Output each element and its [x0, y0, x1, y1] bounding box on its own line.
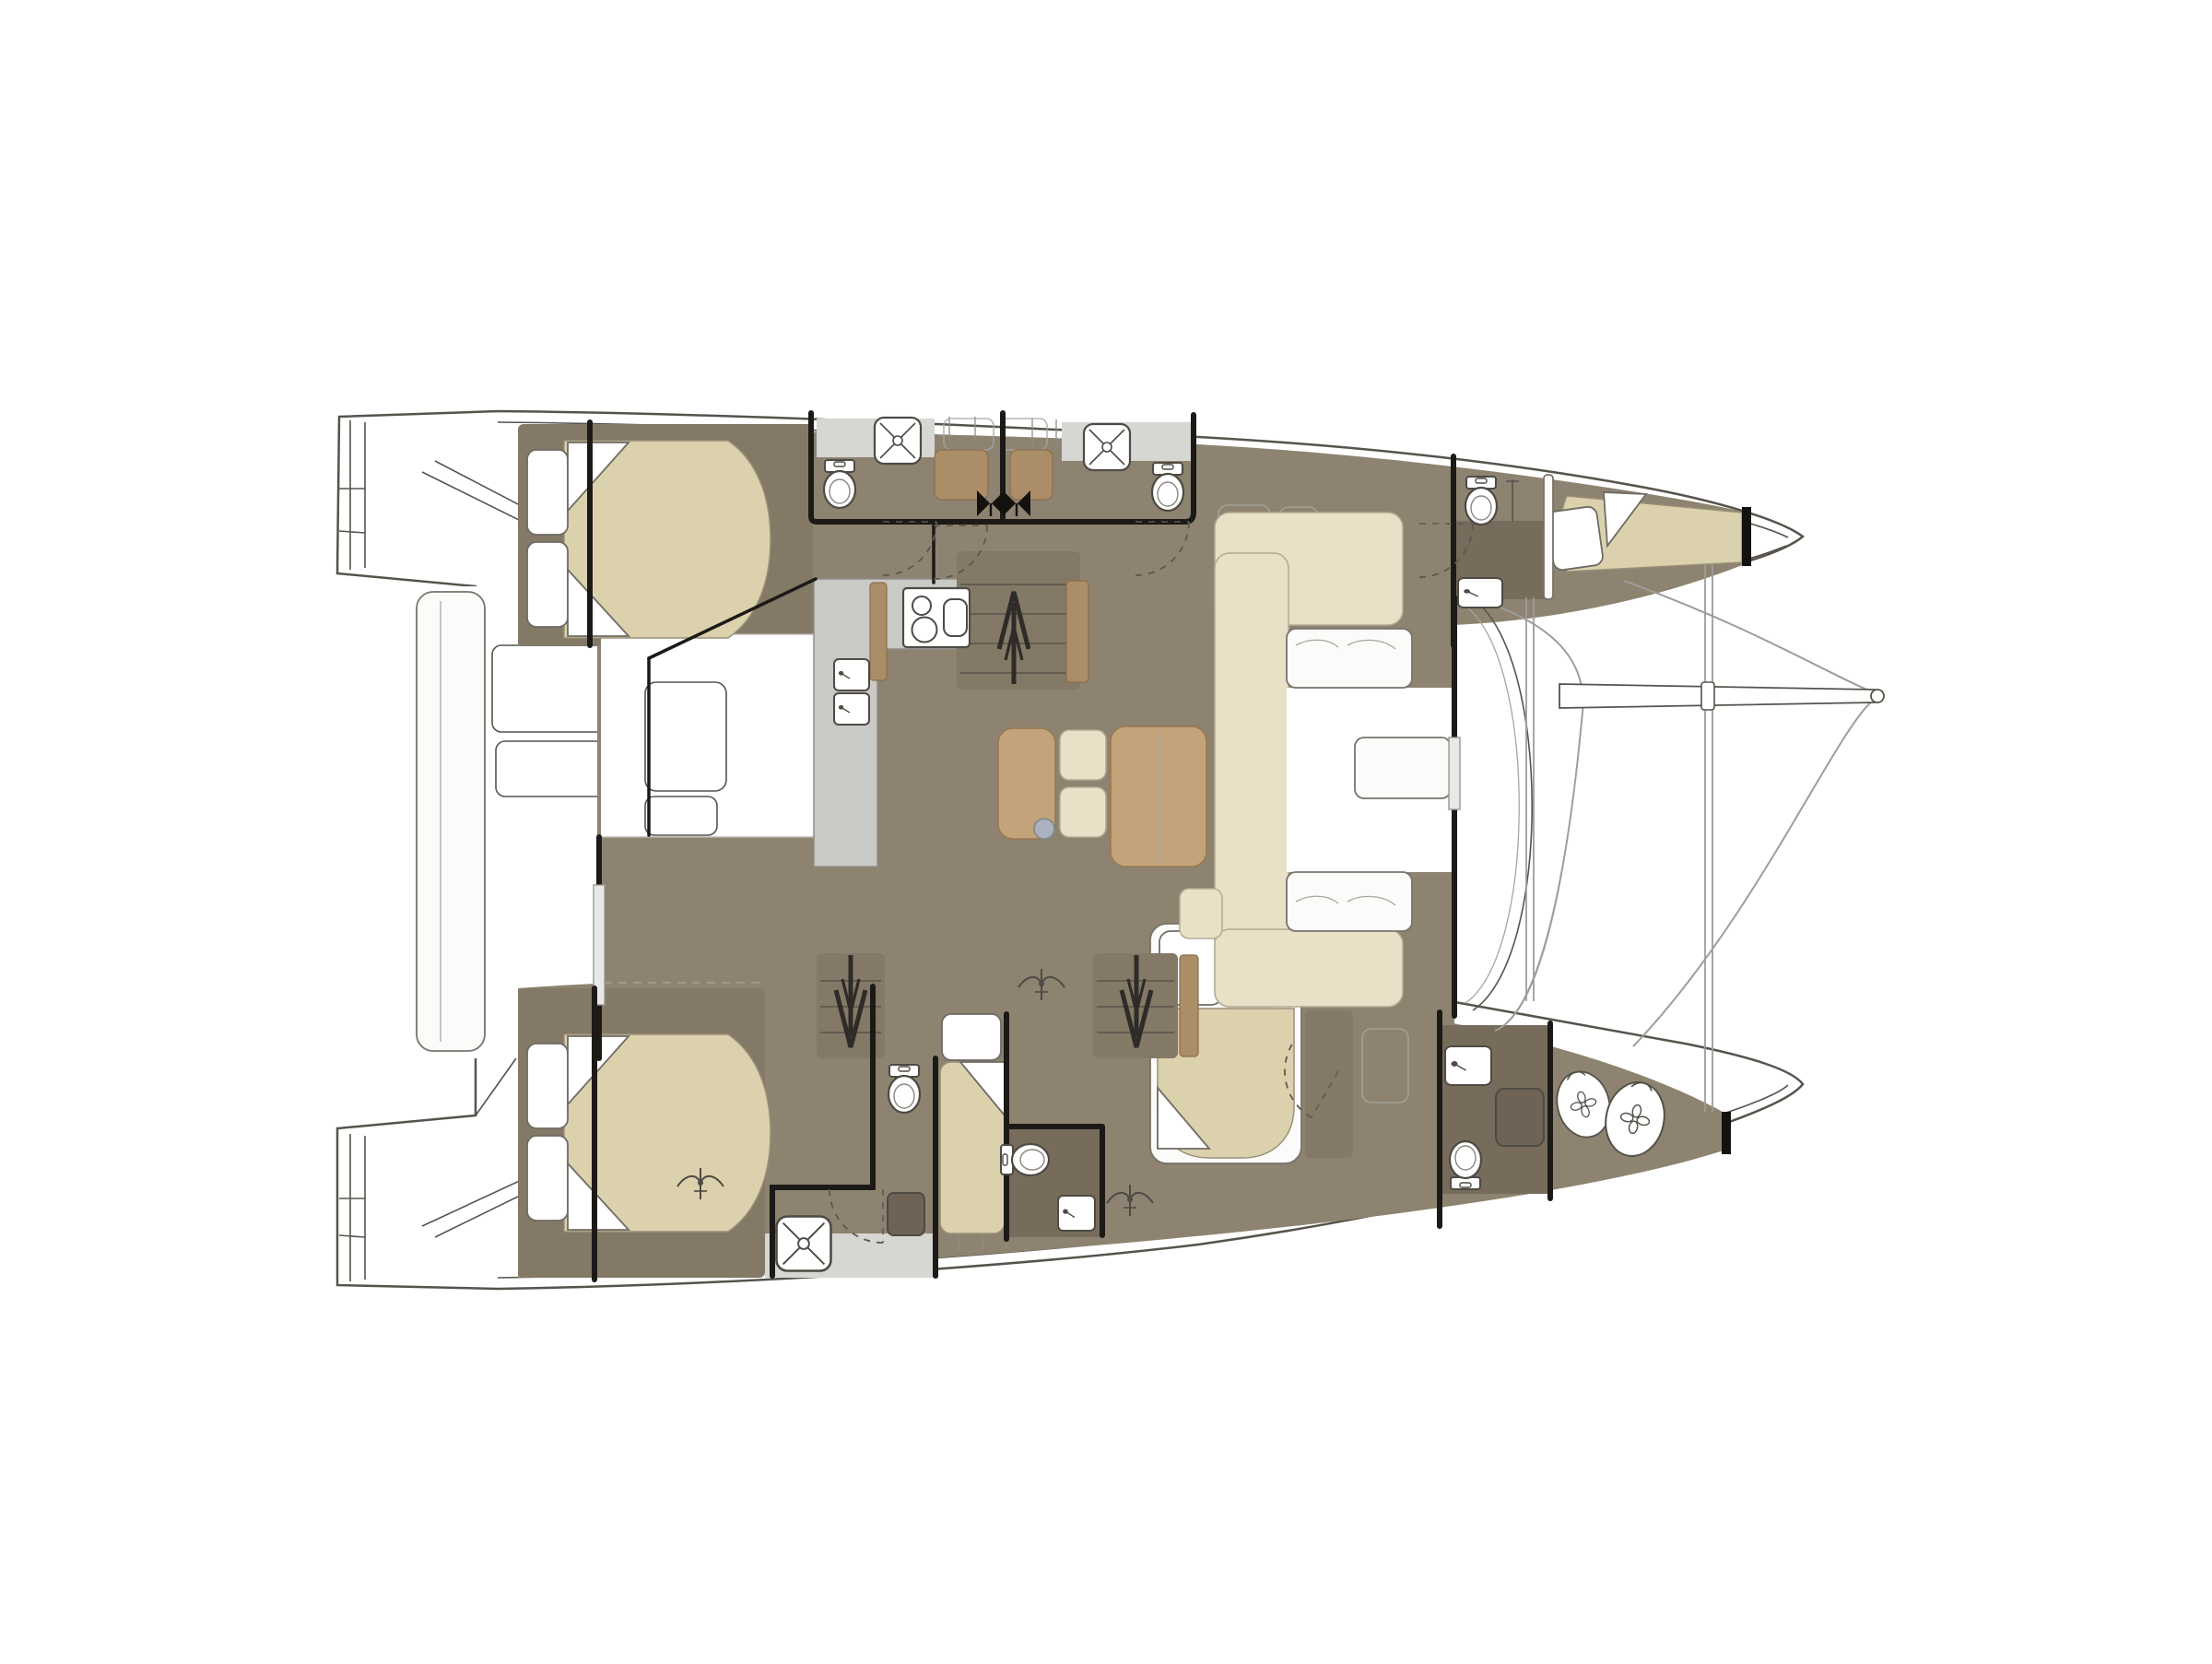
toilet-port-bow-wc	[1465, 477, 1497, 525]
shower-port-fwd	[1084, 424, 1130, 470]
catamaran-floor-plan: Catamaran interior layout — deck floor p…	[0, 0, 2212, 1659]
toilet-port-bath-fwd	[1152, 463, 1183, 511]
toilet-stbd-bath-aft	[888, 1065, 920, 1113]
stbd-collision-bulkhead	[1722, 1112, 1731, 1154]
port-stairs-well	[957, 551, 1080, 690]
port-collision-bulkhead	[1742, 507, 1751, 566]
whisker-stay-port	[1624, 581, 1871, 691]
sink-stbd-mid-wc	[1058, 1196, 1095, 1231]
sink-port-bow-wc	[1458, 578, 1502, 608]
shower-pan-stbd-fwd	[1496, 1089, 1544, 1146]
toilet-stbd-bow-bath	[1450, 1141, 1481, 1189]
coachroof-front-curve-inner	[1464, 605, 1519, 1003]
sink-galley-1	[834, 659, 869, 690]
stbd-aft-pillow-1	[527, 1044, 568, 1128]
coachroof-front-curve-outer	[1471, 597, 1532, 1010]
toilet-port-bath-aft	[824, 460, 855, 508]
shower-stbd-aft	[777, 1217, 831, 1271]
port-bow-pillow	[1547, 506, 1604, 572]
toilet-stbd-mid-wc	[1001, 1144, 1049, 1175]
fwd-lounge-door	[1449, 738, 1460, 809]
sink-galley-2	[834, 693, 869, 725]
floor-plan-page: Catamaran interior layout — deck floor p…	[0, 0, 2212, 1659]
tramp-lacing-stbd	[1495, 702, 1583, 1031]
fwd-lounge-bench-top	[1287, 629, 1412, 688]
cockpit-nook	[601, 634, 816, 837]
port-wc-partition	[1544, 475, 1553, 599]
bowsprit-bracket	[1701, 682, 1714, 710]
port-aft-pillow-2	[527, 542, 568, 627]
stbd-aft-pillow-2	[527, 1136, 568, 1221]
port-locker-1	[935, 450, 988, 500]
stbd-stairs-door	[1180, 955, 1198, 1056]
galley-stove	[903, 588, 970, 647]
stbd-bunk	[940, 1014, 1005, 1233]
port-aft-bed	[527, 441, 771, 638]
stbd-aft-bed	[527, 1034, 771, 1232]
stbd-wardrobe-band	[1305, 1010, 1353, 1158]
whisker-stay-stbd	[1633, 701, 1873, 1046]
bowsprit	[1559, 682, 1884, 710]
fwd-lounge-bench-bottom	[1287, 872, 1412, 931]
sink-stbd-bow-bath	[1445, 1046, 1491, 1085]
dinette-ottoman-3	[1180, 889, 1222, 938]
table-pedestal	[1034, 819, 1054, 839]
fwd-lounge-table	[1355, 738, 1451, 798]
port-stairs-door-right	[1066, 581, 1088, 682]
dinette-ottoman-1	[1060, 730, 1106, 780]
shower-port-aft	[875, 418, 921, 464]
port-stairs-door-left	[870, 583, 887, 680]
port-aft-pillow-1	[527, 450, 568, 535]
cockpit-transom-bench	[417, 592, 485, 1051]
shower-pan-stbd-aft	[888, 1193, 924, 1235]
settee-bottom-arm	[1215, 929, 1403, 1007]
stbd-bunk-pillow	[942, 1014, 1001, 1060]
port-locker-2	[1010, 450, 1053, 500]
dinette-ottoman-2	[1060, 787, 1106, 837]
nook-deck	[601, 634, 816, 837]
